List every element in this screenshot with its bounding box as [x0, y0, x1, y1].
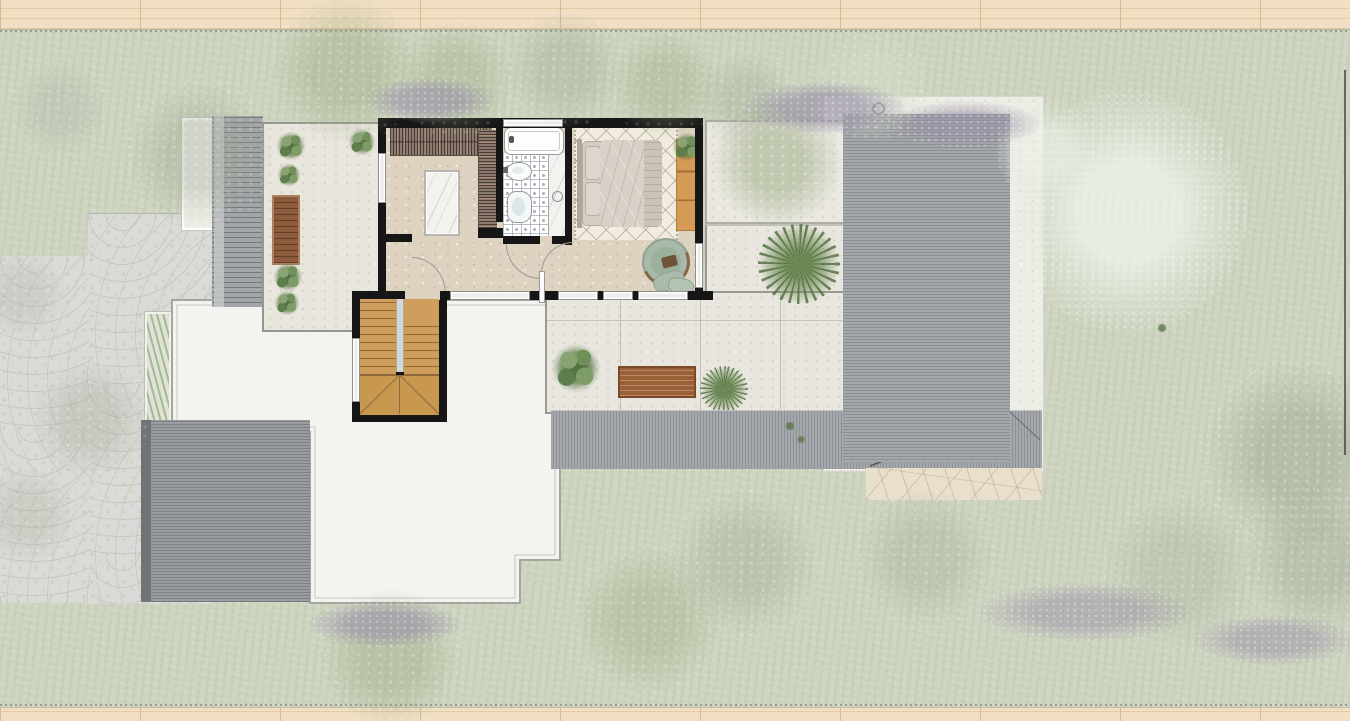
- stair-flight: [404, 322, 439, 375]
- potted-plant: [274, 290, 300, 316]
- stair-window: [352, 338, 360, 402]
- sink-basin: [512, 167, 524, 174]
- stair-spine-wall: [396, 299, 404, 372]
- louver-roof-rail: [214, 116, 224, 307]
- bathroom-sink: [506, 162, 532, 181]
- potted-plant: [552, 342, 600, 394]
- sliding-glass-door: [450, 291, 530, 300]
- stair-flight: [404, 299, 439, 322]
- sink-tap: [503, 167, 508, 173]
- paving-joint: [547, 320, 850, 321]
- louver-roof: [212, 116, 263, 307]
- wall-bath-south: [503, 236, 540, 244]
- wall-bath-bedroom: [565, 126, 572, 245]
- garage-roof: [141, 420, 310, 602]
- bed-throw: [644, 140, 662, 227]
- flagstone-paving: [866, 468, 1042, 500]
- toilet: [507, 191, 532, 223]
- potted-plant: [276, 131, 306, 161]
- boundary-line: [1344, 70, 1346, 455]
- grass-tuft: [784, 422, 796, 430]
- wall-wardrobe-bath: [496, 126, 503, 222]
- window: [378, 153, 386, 203]
- garage-roof-edge: [141, 420, 151, 601]
- wall-stub: [478, 228, 503, 238]
- bathtub-faucet: [509, 136, 514, 143]
- window: [638, 291, 688, 300]
- potted-plant: [277, 163, 301, 187]
- terrace-lounger: [272, 195, 300, 265]
- shower-head-dot: [873, 105, 876, 108]
- door-leaf: [539, 271, 545, 303]
- terrace-bench: [618, 366, 696, 398]
- wall-south: [688, 291, 713, 300]
- window: [695, 243, 703, 288]
- stair-flight: [360, 299, 396, 375]
- site-plan-canvas: [0, 0, 1350, 721]
- ornamental-grass: [758, 224, 840, 304]
- shower-drain-icon: [552, 191, 563, 202]
- wardrobe-closet: [478, 130, 497, 234]
- bed-pillow: [585, 146, 601, 180]
- wardrobe-closet: [390, 128, 492, 156]
- window: [603, 291, 633, 300]
- window: [503, 119, 563, 127]
- toilet-bowl: [512, 197, 525, 216]
- upper-terrace: [705, 120, 847, 224]
- potted-plant: [348, 128, 376, 156]
- ornamental-grass: [700, 366, 748, 412]
- window: [558, 291, 598, 300]
- grass-tuft: [796, 436, 806, 443]
- main-metal-roof: [843, 114, 1010, 462]
- wardrobe-island: [424, 170, 460, 236]
- potted-plant: [273, 262, 303, 292]
- wall-wardrobe-south: [386, 234, 412, 242]
- paving-joint: [780, 293, 781, 412]
- bed-pillow: [585, 182, 601, 216]
- grass-tuft: [1156, 324, 1168, 332]
- wall-west: [378, 118, 386, 300]
- stair-landing-lines: [360, 375, 439, 414]
